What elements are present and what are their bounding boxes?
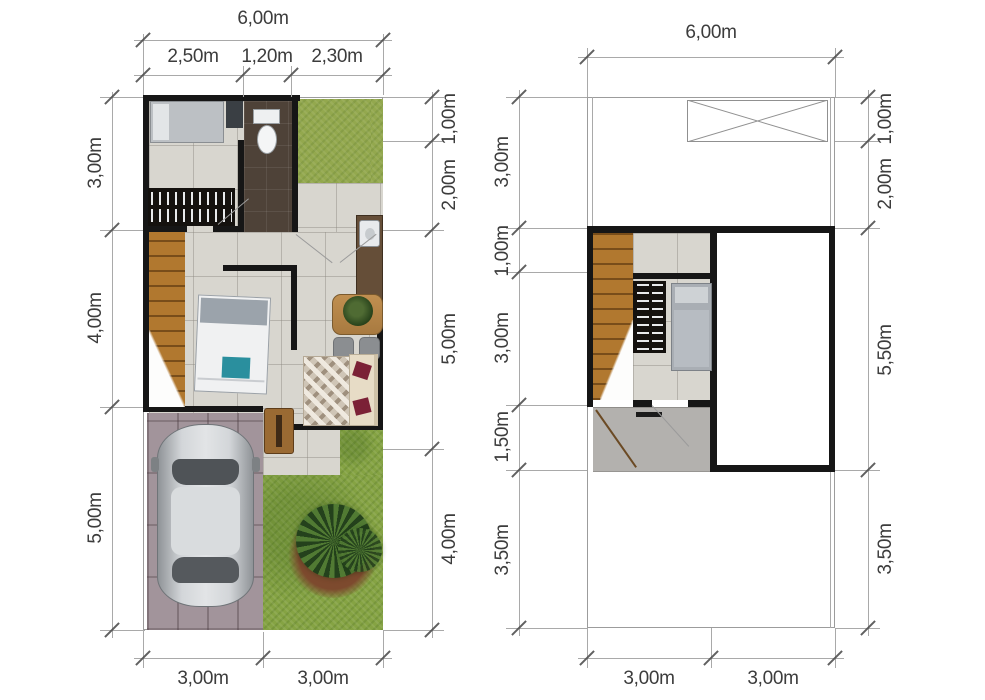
extension-line	[835, 97, 880, 98]
extension-line	[383, 230, 444, 231]
dim-line	[519, 90, 520, 636]
dim-label-left: 1,50m	[492, 397, 514, 477]
dim-label-right: 5,00m	[439, 299, 461, 379]
dim-line	[578, 57, 844, 58]
dim-line	[868, 90, 869, 636]
dim-line	[112, 92, 113, 638]
extension-line	[263, 632, 264, 668]
extension-line	[835, 628, 880, 629]
extension-line	[143, 630, 144, 668]
dim-label-left: 3,00m	[492, 298, 514, 378]
dim-label-left: 3,50m	[492, 510, 514, 590]
dim-label-left: 3,00m	[85, 123, 107, 203]
dim-line	[432, 92, 433, 638]
extension-line	[383, 141, 444, 142]
dim-label-bottom: 3,00m	[604, 668, 694, 690]
dim-label-bottom: 3,00m	[728, 668, 818, 690]
extension-line	[587, 628, 588, 668]
extension-line	[383, 34, 384, 95]
floorplan-canvas: 6,00m 2,50m 1,20m 2,30m 3,00m 4,00m 5,00…	[0, 0, 985, 700]
extension-line	[243, 66, 244, 97]
extension-line	[711, 628, 712, 668]
dim-label-left: 1,00m	[492, 211, 514, 291]
dim-label-top-overall: 6,00m	[661, 22, 761, 44]
extension-line	[835, 141, 880, 142]
extension-line	[383, 449, 444, 450]
dim-label-left: 3,00m	[492, 122, 514, 202]
extension-line	[835, 628, 836, 668]
extension-line	[143, 34, 144, 95]
dim-label-right: 2,00m	[875, 144, 897, 224]
dim-line	[134, 40, 392, 41]
extension-line	[383, 630, 444, 631]
dim-label-bottom: 3,00m	[278, 668, 368, 690]
dim-label-left: 4,00m	[85, 278, 107, 358]
extension-line	[100, 97, 143, 98]
dim-label-right: 3,50m	[875, 509, 897, 589]
dim-label-left: 5,00m	[85, 478, 107, 558]
extension-line	[835, 228, 880, 229]
dimension-annotations: 6,00m 2,50m 1,20m 2,30m 3,00m 4,00m 5,00…	[0, 0, 985, 700]
dim-label-top-overall: 6,00m	[213, 8, 313, 30]
extension-line	[835, 470, 880, 471]
dim-label-top-seg: 2,30m	[292, 46, 382, 68]
dim-line	[134, 75, 392, 76]
extension-line	[100, 407, 143, 408]
dim-label-right: 5,50m	[875, 310, 897, 390]
extension-line	[291, 66, 292, 97]
dim-label-right: 2,00m	[439, 145, 461, 225]
extension-line	[100, 630, 145, 631]
dim-label-right: 4,00m	[439, 499, 461, 579]
extension-line	[383, 630, 384, 668]
extension-line	[383, 97, 444, 98]
extension-line	[100, 230, 143, 231]
dim-label-bottom: 3,00m	[158, 668, 248, 690]
